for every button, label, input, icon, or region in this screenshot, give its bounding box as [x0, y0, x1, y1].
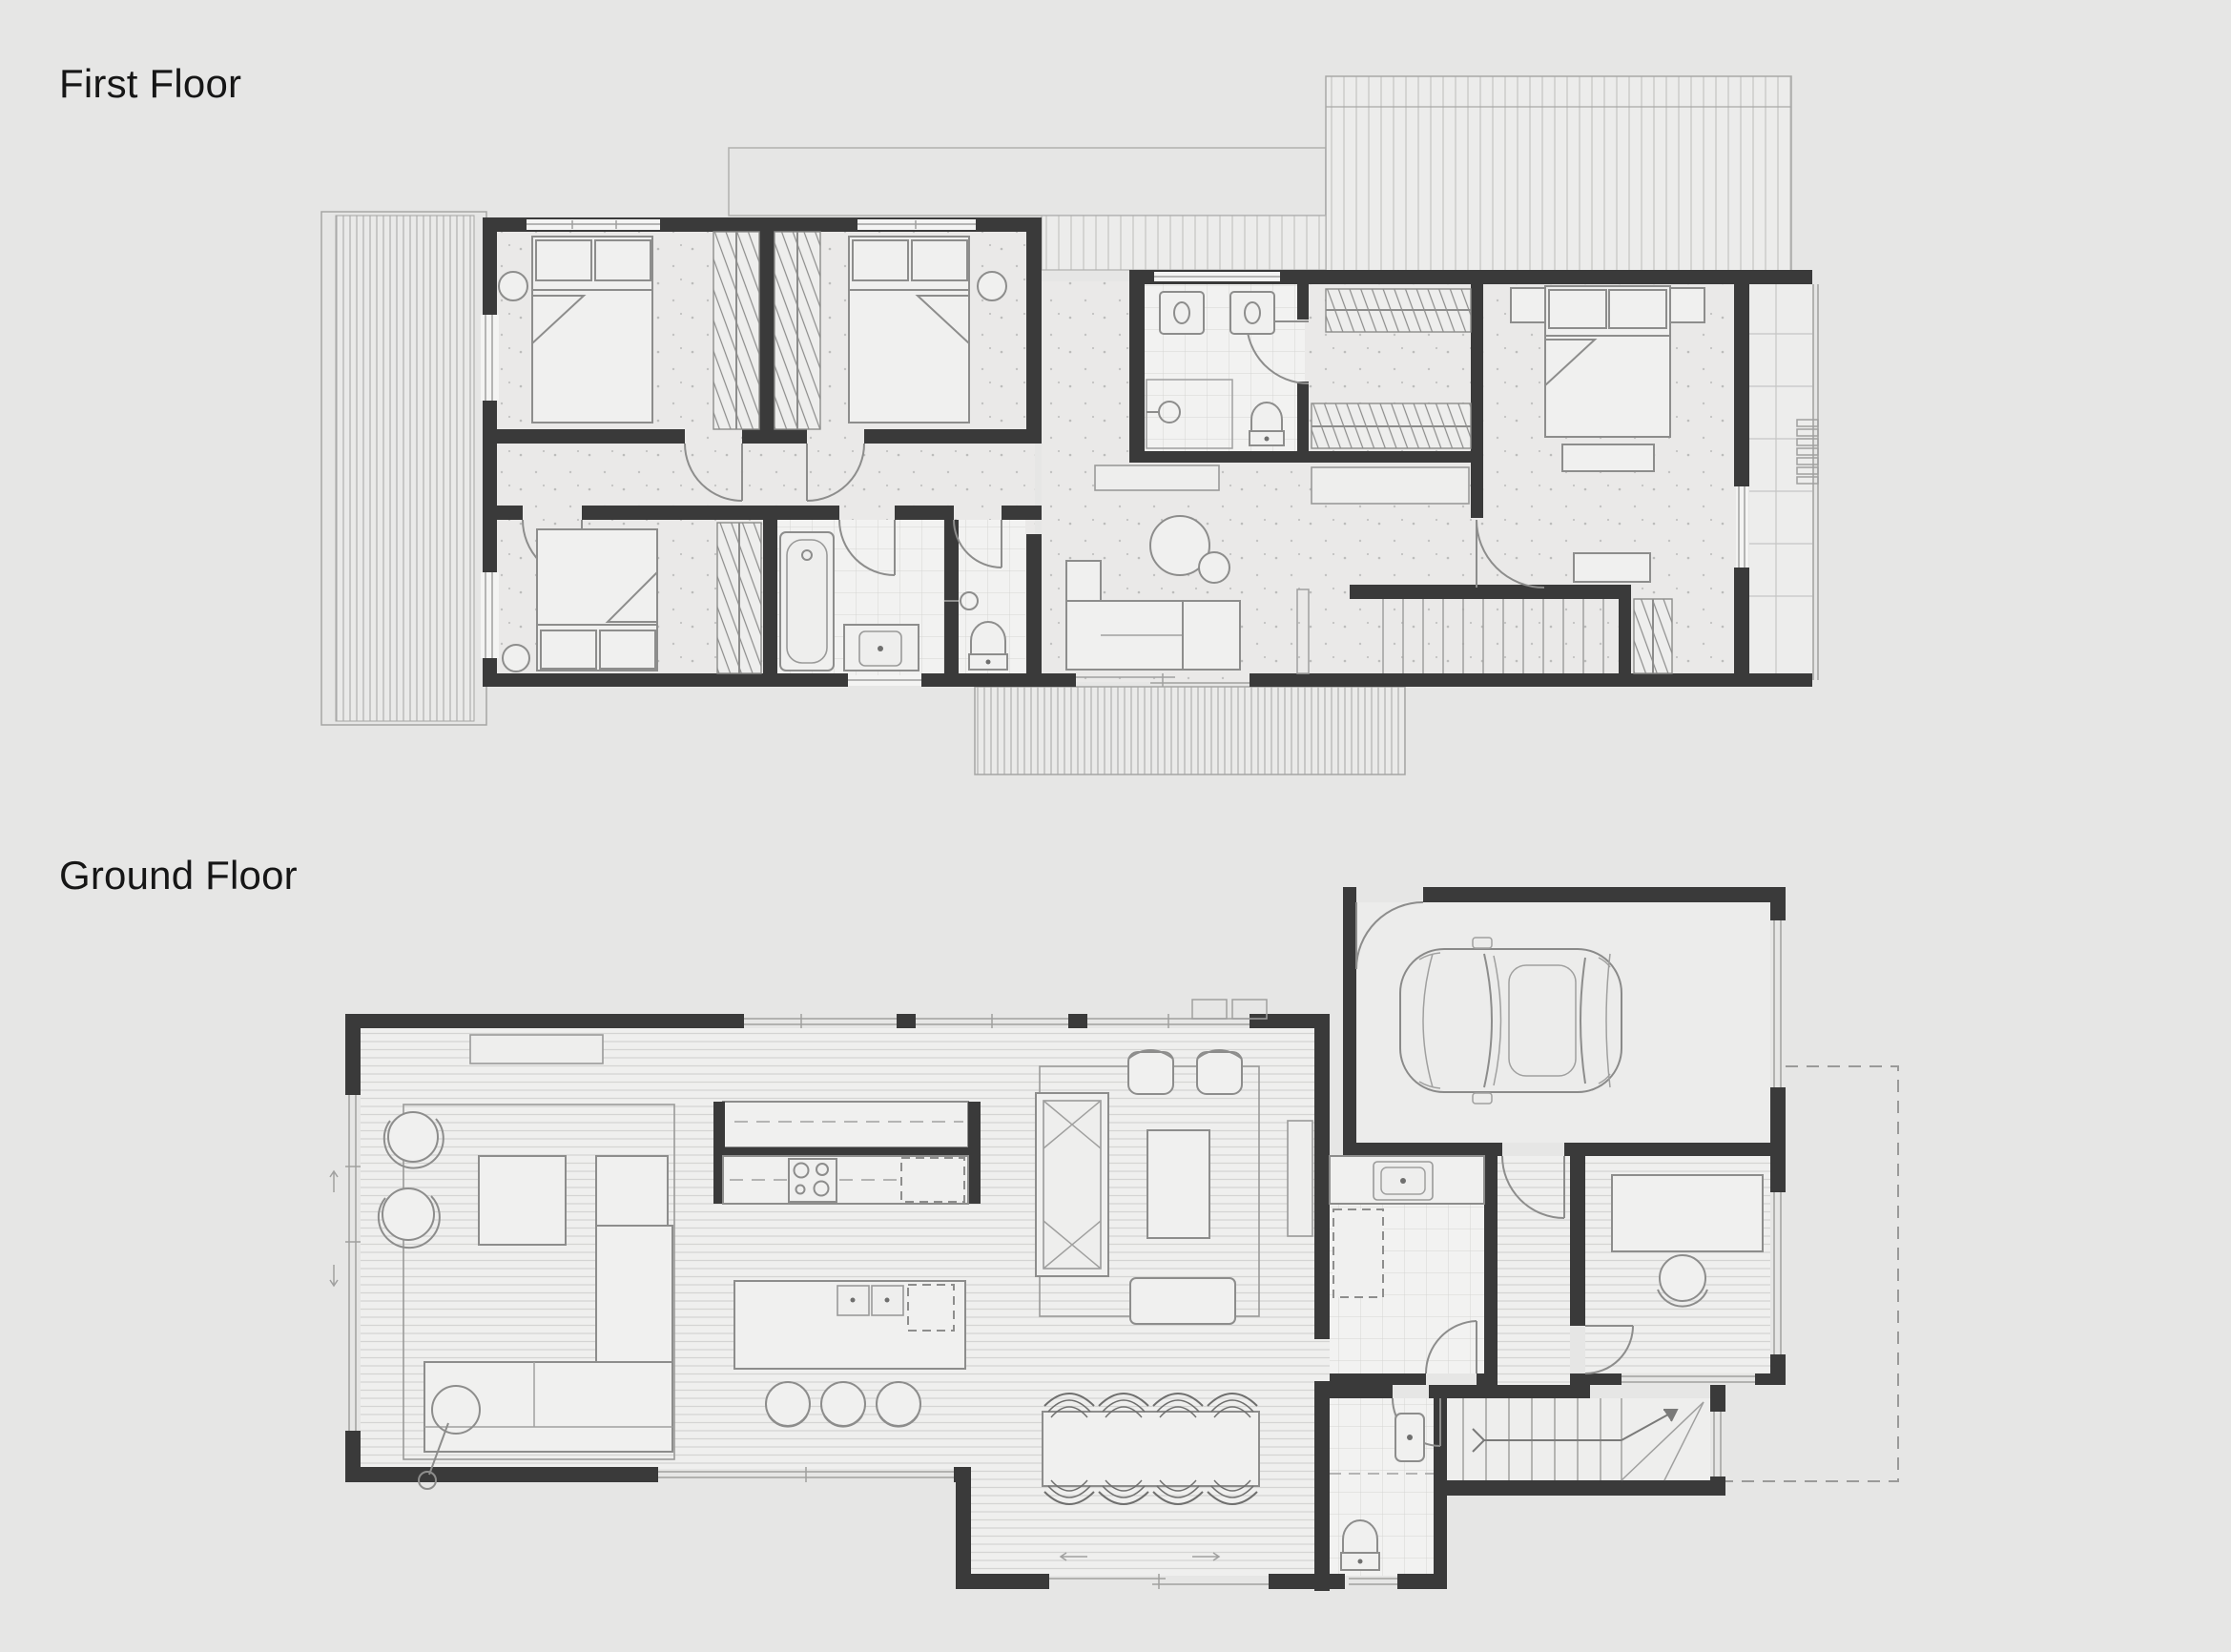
bedroom-3 [503, 523, 761, 673]
entry-step-icon [1192, 1000, 1227, 1019]
bathtub-icon [780, 532, 834, 671]
washbasin-icon [844, 625, 919, 671]
console-icon [1288, 1121, 1312, 1236]
ottoman [1130, 1278, 1235, 1324]
sink-icon [1374, 1162, 1433, 1200]
dining-table-icon [1043, 1412, 1259, 1486]
desk-icon [1612, 1175, 1763, 1251]
kitchen-bench [713, 1102, 981, 1204]
toilet-icon [1341, 1520, 1379, 1570]
daybed-icon [1036, 1093, 1108, 1276]
cooktop-icon [789, 1159, 837, 1202]
bed-icon [537, 529, 657, 671]
bed-icon [532, 237, 652, 423]
appliance-dashed-icon [1333, 1209, 1383, 1297]
shelf-icon [1312, 467, 1469, 504]
toilet-icon [969, 622, 1007, 670]
bedside-table-icon [1670, 288, 1704, 322]
bed-icon [1545, 286, 1670, 437]
bedside-table-icon [503, 645, 529, 671]
bedside-table-icon [978, 272, 1006, 300]
lounge-chair-icon [1128, 1050, 1173, 1094]
washbasin-icon [1395, 1414, 1424, 1461]
dresser-icon [1574, 553, 1650, 582]
fireplace-console [470, 1035, 603, 1063]
window-swing-marks [330, 1171, 338, 1286]
bed-icon [849, 237, 969, 423]
coffee-table [1147, 1130, 1209, 1238]
bench-icon [1562, 444, 1654, 471]
stool-icon [766, 1382, 920, 1427]
bedroom-1 [499, 232, 759, 429]
car-icon [1400, 938, 1622, 1104]
dishwasher-dashed-icon [908, 1285, 954, 1331]
south-deck [975, 687, 1405, 774]
washbasin-icon [1160, 292, 1204, 334]
ground-floor-plan [330, 887, 1898, 1591]
first-floor-plan [321, 76, 1818, 774]
washbasin-icon [1230, 292, 1274, 334]
fridge-dashed-icon [901, 1158, 964, 1202]
lounge-chair-icon [1197, 1050, 1242, 1094]
toilet-icon [1250, 403, 1284, 445]
floor-plans-canvas [0, 0, 2231, 1652]
bedside-table-icon [1511, 288, 1545, 322]
console-icon [1095, 465, 1219, 490]
bedside-table-icon [499, 272, 527, 300]
garage [1400, 938, 1622, 1104]
west-deck [321, 212, 486, 725]
round-table-icon [1199, 552, 1229, 583]
